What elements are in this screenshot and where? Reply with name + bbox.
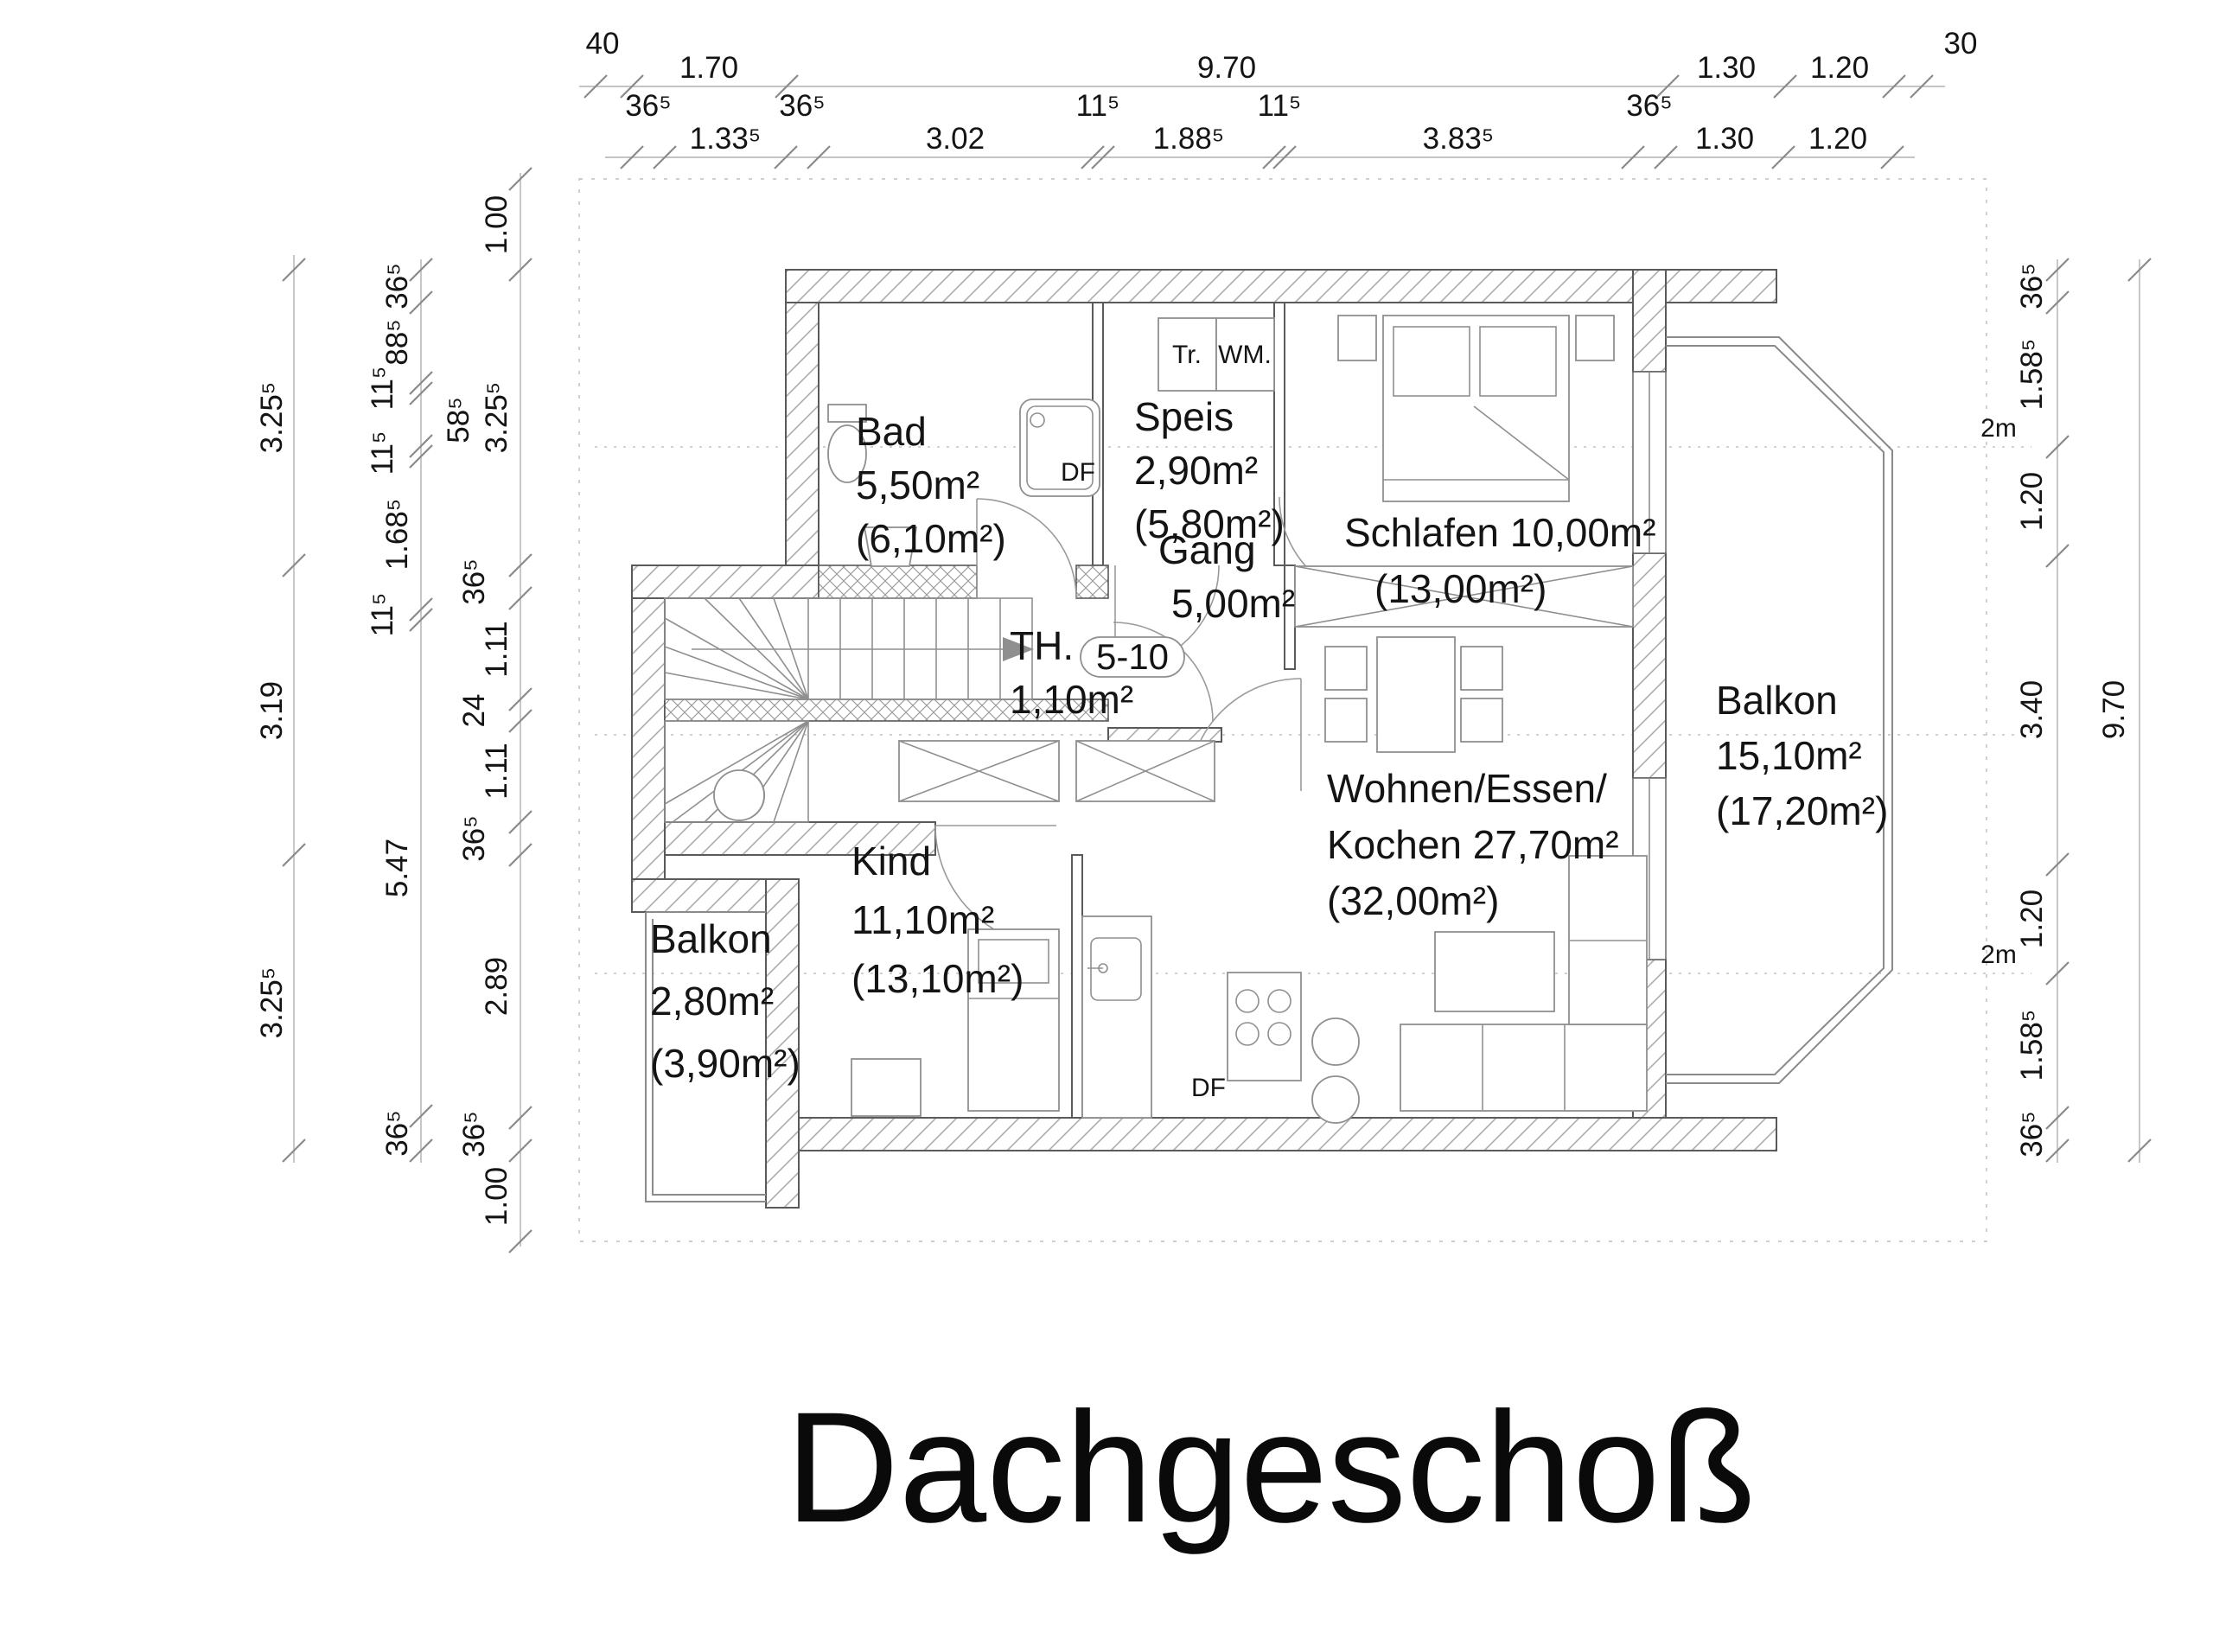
dim-right: 3.40	[2015, 680, 2049, 739]
dim-right: 1.58⁵	[2015, 339, 2049, 411]
dim-left: 36⁵	[380, 263, 414, 309]
dimension-chain-top: 40 30 1.70 9.70 1.30 1.20 36⁵ 36⁵ 11⁵ 11…	[579, 27, 1977, 169]
dim-top: 36⁵	[779, 89, 825, 123]
chair	[1461, 647, 1502, 690]
wall-balcony-west-top	[632, 879, 766, 912]
dim-right: 36⁵	[2015, 1111, 2049, 1157]
nightstand	[1338, 316, 1376, 360]
dim-left: 1.68⁵	[380, 499, 414, 571]
dim-left: 2.89	[480, 957, 513, 1016]
label-wohnen-line3: (32,00m²)	[1327, 878, 1499, 923]
dim-left: 11⁵	[366, 431, 399, 475]
dim-left: 88⁵	[380, 319, 414, 365]
label-balkon-west-name: Balkon	[650, 916, 772, 961]
wall-west-lower	[632, 598, 665, 879]
dining-table	[1377, 637, 1455, 752]
dim-top: 1.70	[679, 51, 738, 85]
dim-left: 1.00	[480, 1167, 513, 1226]
label-balkon-west-area-roof: (3,90m²)	[650, 1041, 800, 1086]
dim-left: 11⁵	[366, 367, 399, 411]
dim-top: 1.30	[1697, 51, 1756, 85]
dim-left: 36⁵	[457, 815, 491, 861]
label-kind-name: Kind	[851, 839, 931, 883]
dim-top: 1.33⁵	[690, 122, 762, 156]
label-speis-name: Speis	[1134, 394, 1234, 439]
dim-left: 36⁵	[457, 558, 491, 604]
stool	[1312, 1018, 1359, 1065]
label-stair-badge: 5-10	[1096, 636, 1169, 677]
label-bad-name: Bad	[856, 409, 927, 454]
label-th-area: 1,10m²	[1010, 677, 1133, 722]
dim-left: 58⁵	[442, 397, 475, 443]
dim-right: 1.20	[2015, 472, 2049, 531]
dim-top-corner-left: 40	[586, 27, 620, 61]
dim-left: 5.47	[380, 839, 414, 897]
dim-right-total: 9.70	[2097, 680, 2131, 739]
dim-top-corner-right: 30	[1944, 27, 1978, 61]
wardrobe-kind-2	[1076, 741, 1215, 801]
label-gang-name: Gang	[1158, 527, 1256, 572]
wall-step	[632, 565, 819, 598]
label-balkon-ost-area-roof: (17,20m²)	[1716, 788, 1888, 833]
label-wohnen-line2: Kochen 27,70m²	[1327, 822, 1619, 867]
label-th-name: TH.	[1010, 623, 1074, 668]
label-bad-area: 5,50m²	[856, 462, 979, 507]
dim-left: 3.25⁵	[480, 382, 513, 454]
label-bad-area-roof: (6,10m²)	[856, 516, 1006, 561]
wall-north	[786, 270, 1776, 303]
label-balkon-ost-area: 15,10m²	[1716, 733, 1862, 778]
wall-stub-gang	[1108, 728, 1221, 742]
label-wohnen-line1: Wohnen/Essen/	[1327, 766, 1607, 811]
dining-furniture	[1325, 637, 1502, 752]
height-mark-2m-lower: 2m	[1980, 941, 2017, 969]
label-speis-area: 2,90m²	[1134, 448, 1258, 493]
dim-top: 9.70	[1197, 51, 1256, 85]
label-kind-area: 11,10m²	[851, 897, 994, 942]
stair-count-badge: 5-10	[1081, 636, 1184, 677]
dim-left: 3.19	[255, 681, 289, 740]
page-title: Dachgeschoß	[786, 1379, 1757, 1555]
dim-top: 1.20	[1810, 51, 1869, 85]
dim-left: 3.25⁵	[255, 382, 289, 454]
nightstand	[1576, 316, 1614, 360]
dim-top: 11⁵	[1258, 89, 1302, 123]
chair	[1325, 647, 1367, 690]
floor-plan-page: 2m 2m	[0, 0, 2213, 1652]
label-dryer: Tr.	[1172, 341, 1202, 369]
wardrobe-kind-1	[899, 741, 1059, 801]
dim-top: 11⁵	[1076, 89, 1120, 123]
floor-plan-drawing: 2m 2m	[0, 0, 2213, 1652]
desk	[851, 1059, 921, 1116]
dim-right: 1.20	[2015, 890, 2049, 948]
label-gang-area: 5,00m²	[1171, 581, 1295, 626]
height-mark-2m-upper: 2m	[1980, 414, 2017, 443]
wall-kind-east	[1072, 855, 1082, 1118]
label-kind-area-roof: (13,10m²)	[851, 956, 1024, 1001]
dim-left: 1.00	[480, 195, 513, 254]
dim-top: 1.20	[1808, 122, 1867, 156]
kneewall-above-stairs-2	[1076, 565, 1108, 598]
wall-west-upper	[786, 303, 819, 565]
dim-top: 36⁵	[625, 89, 671, 123]
label-balkon-ost-name: Balkon	[1716, 678, 1838, 723]
dim-top: 1.88⁵	[1153, 122, 1225, 156]
dim-top: 36⁵	[1626, 89, 1672, 123]
coffee-table	[1435, 932, 1554, 1011]
wall-east-1	[1633, 270, 1666, 372]
kneewall-above-stairs-1	[819, 565, 977, 598]
dim-top: 3.83⁵	[1423, 122, 1495, 156]
dim-right: 36⁵	[2015, 263, 2049, 309]
wall-east-2	[1633, 553, 1666, 778]
dim-top: 3.02	[926, 122, 985, 156]
label-balkon-west-area: 2,80m²	[650, 979, 774, 1024]
dim-left: 11⁵	[366, 593, 399, 637]
label-schlafen-area-roof: (13,00m²)	[1374, 566, 1547, 611]
dim-left: 1.11	[480, 621, 513, 678]
dim-left: 36⁵	[380, 1110, 414, 1156]
label-washer: WM.	[1218, 341, 1272, 369]
wall-south	[799, 1118, 1776, 1151]
dim-left: 24	[457, 694, 491, 728]
chair	[1325, 698, 1367, 742]
dim-left: 36⁵	[457, 1111, 491, 1157]
label-df-bad: DF	[1061, 458, 1095, 487]
dim-right: 1.58⁵	[2015, 1010, 2049, 1081]
stool	[1312, 1076, 1359, 1123]
dimension-chain-left: 3.25⁵ 3.19 3.25⁵ 36⁵ 88⁵ 11⁵ 58⁵ 11⁵ 1.6…	[255, 168, 532, 1253]
chair	[1461, 698, 1502, 742]
dimension-chain-right: 36⁵ 1.58⁵ 1.20 3.40 1.20 1.58⁵ 36⁵ 9.70	[2015, 258, 2151, 1163]
dim-left: 1.11	[480, 743, 513, 800]
label-schlafen-name: Schlafen 10,00m²	[1344, 510, 1656, 555]
label-df-kitchen: DF	[1191, 1074, 1226, 1102]
dim-left: 3.25⁵	[255, 967, 289, 1039]
dim-top: 1.30	[1695, 122, 1754, 156]
sofa-bottom	[1400, 1024, 1647, 1111]
